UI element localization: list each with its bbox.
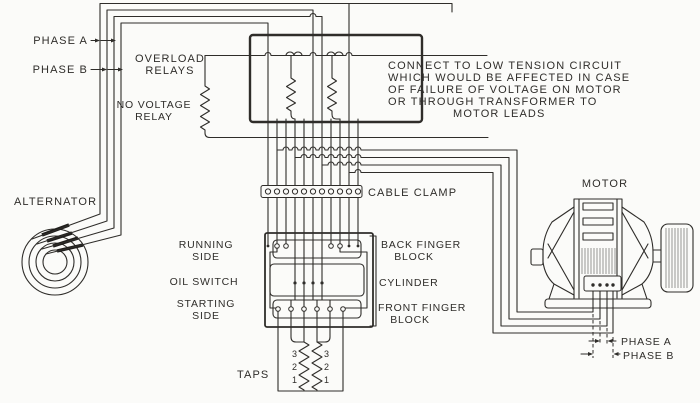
- wiring-diagram-page: PHASE A PHASE B OVERLOAD RELAYS NO VOLTA…: [0, 0, 700, 403]
- tap-number: 2: [324, 362, 329, 372]
- cable-clamp: [261, 186, 362, 198]
- motor-lead-phase-marks: [581, 314, 620, 358]
- oil-switch: [265, 233, 376, 327]
- note-line-4: OR THROUGH TRANSFORMER TO: [388, 96, 597, 108]
- tap-number: 1: [324, 375, 329, 385]
- starting-side-label: STARTING: [177, 298, 236, 310]
- back-finger-block-label: BACK FINGER: [381, 239, 461, 251]
- tap-number: 2: [292, 362, 297, 372]
- svg-text:SIDE: SIDE: [192, 251, 220, 263]
- cylinder-label: CYLINDER: [379, 277, 439, 289]
- overload-coil-icon: [287, 56, 296, 120]
- note-line-1: CONNECT TO LOW TENSION CIRCUIT: [388, 60, 622, 72]
- phase-b-top-label: PHASE B: [33, 64, 88, 76]
- taps-label: TAPS: [237, 369, 269, 381]
- tap-coil-icon: [312, 312, 322, 392]
- overload-relays-label: OVERLOAD: [135, 53, 205, 65]
- alternator: [22, 225, 88, 295]
- motor: [531, 199, 693, 308]
- note-line-3: OF FAILURE OF VOLTAGE ON MOTOR: [388, 84, 622, 96]
- no-voltage-relay-label: NO VOLTAGE: [117, 99, 192, 111]
- svg-text:RELAYS: RELAYS: [145, 65, 194, 77]
- motor-base: [545, 299, 651, 308]
- phase-a-top-label: PHASE A: [33, 35, 88, 47]
- tap-number: 1: [292, 375, 297, 385]
- phase-b-bottom-label: PHASE B: [623, 350, 674, 362]
- svg-text:SIDE: SIDE: [192, 310, 220, 322]
- cylinder-block: [270, 264, 364, 296]
- tap-number: 3: [324, 349, 329, 359]
- wiring-diagram: PHASE A PHASE B OVERLOAD RELAYS NO VOLTA…: [0, 0, 700, 403]
- svg-text:RELAY: RELAY: [135, 111, 173, 123]
- tap-number: 3: [292, 349, 297, 359]
- running-side-label: RUNNING: [179, 239, 234, 251]
- taps: [278, 312, 343, 392]
- terminal-box: [584, 276, 621, 291]
- note-line-5: MOTOR LEADS: [453, 108, 546, 120]
- overload-coil-icon: [328, 56, 341, 120]
- motor-shaft: [653, 250, 661, 262]
- note-line-2: WHICH WOULD BE AFFECTED IN CASE: [388, 72, 630, 84]
- svg-text:BLOCK: BLOCK: [390, 314, 430, 326]
- cable-clamp-label: CABLE CLAMP: [368, 187, 457, 199]
- svg-text:BLOCK: BLOCK: [394, 251, 434, 263]
- phase-a-bottom-label: PHASE A: [621, 336, 672, 348]
- oil-switch-label: OIL SWITCH: [170, 276, 239, 288]
- motor-label: MOTOR: [582, 178, 628, 190]
- alternator-label: ALTERNATOR: [14, 196, 97, 208]
- tap-coil-icon: [299, 312, 309, 392]
- front-finger-block-label: FRONT FINGER: [378, 302, 466, 314]
